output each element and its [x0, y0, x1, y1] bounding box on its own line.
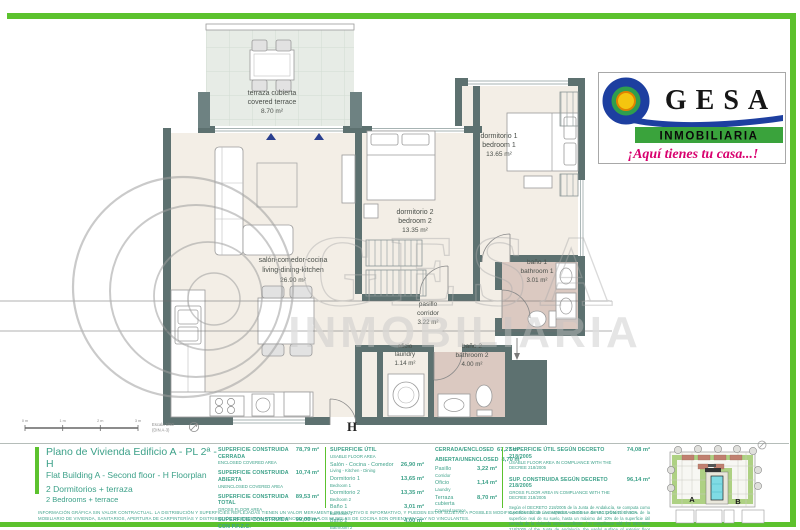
dining-chair-icon: [262, 286, 284, 298]
table-row: Salón - Cocina - Comedor Living - Kitche…: [330, 462, 424, 474]
bedroom1-label-es: dormitorio 1: [481, 133, 518, 140]
logo-subtitle: INMOBILIARIA: [659, 131, 758, 143]
row-label-es: SUPERFICIE CONSTRUIDA CERRADA: [218, 447, 293, 460]
scale-tick-0: 0 m: [22, 419, 28, 423]
disclaimer-line-2: MOBILIARIO DE VIVIENDA, SANITARIOS, APER…: [38, 516, 788, 522]
floor-plan: terraza cubierta covered terrace 8.70 m²…: [0, 0, 800, 443]
column-divider: [325, 447, 326, 508]
building-a-label: A: [689, 495, 695, 504]
table-row: CERRADA/ENCLOSED 67,27 m²: [435, 447, 497, 454]
title-block: Plano de Vivienda Edificio A - PL 2ª - H…: [46, 446, 221, 504]
tv-unit-icon: [342, 155, 355, 203]
terrace-table-icon: [250, 50, 294, 80]
table-row: SUPERFICIE ÚTIL SEGÚN DECRETO 218/2005 U…: [509, 447, 650, 471]
table-row: Dormitorio 1 Bedroom 1 13,65 m²: [330, 476, 424, 488]
table-row: SUPERFICIE CONSTRUIDA ABIERTA UNENCLOSED…: [218, 470, 319, 488]
kitchen-sink-icon: [175, 306, 201, 344]
table-row: Oficio Laundry 1,14 m²: [435, 480, 497, 492]
watermark-inmobiliaria-text: INMOBILIARIA: [288, 308, 642, 357]
pool: [711, 476, 723, 500]
north-indicator-icon: [758, 441, 766, 449]
row-value: 78,79 m²: [296, 447, 319, 453]
terrace-railing: [206, 24, 354, 30]
logo-name: GESA: [665, 85, 777, 116]
table-row: SUPERFICIE CONSTRUIDA CERRADA ENCLOSED C…: [218, 447, 319, 465]
laundry-area: 1.14 m²: [395, 360, 416, 367]
north-indicator-icon: [189, 422, 198, 431]
plan-title-es: Plano de Vivienda Edificio A - PL 2ª - H: [46, 446, 221, 470]
logo-swoosh-icon: [633, 115, 783, 128]
sofa-icon: [215, 147, 243, 255]
terrace-label-es: terraza cubierta: [248, 90, 297, 97]
table-row: SUP. CONSTRUIDA SEGÚN DECRETO 218/2005 G…: [509, 477, 650, 501]
scale-label: Escala 1/50: [152, 422, 175, 427]
bath2-area: 4.00 m²: [462, 361, 483, 368]
scale-bar: 0 m 1 m 2 m 3 m Escala 1/50 (DIN A-3): [18, 410, 218, 440]
logo-slogan: ¡Aquí tienes tu casa...!: [628, 147, 759, 162]
disclaimer: INFORMACIÓN GRÁFICA SIN VALOR CONTRACTUA…: [38, 510, 788, 523]
terrace-area: 8.70 m²: [261, 108, 284, 115]
usable-header: SUPERFICIE ÚTIL USABLE FLOOR AREA: [330, 447, 424, 459]
table-row: Pasillo Corridor 3,22 m²: [435, 466, 497, 478]
gesa-logo-icon: GESA INMOBILIARIA ¡Aquí tienes tu casa..…: [599, 73, 785, 163]
fridge-icon: [284, 392, 310, 416]
bath2-sink-icon: [438, 394, 470, 417]
plan-subtitle-en: 2 Bedrooms + terrace: [46, 495, 221, 504]
logo: GESA INMOBILIARIA ¡Aquí tienes tu casa..…: [598, 72, 786, 164]
building-b-label: B: [735, 497, 741, 506]
floorplan-page: terraza cubierta covered terrace 8.70 m²…: [0, 0, 800, 530]
wardrobe-icon-2: [560, 92, 578, 126]
terrace-label-en: covered terrace: [248, 99, 297, 106]
plan-subtitle-es: 2 Dormitorios + terraza: [46, 484, 221, 494]
plan-title-en: Flat Building A - Second floor - H Floor…: [46, 470, 221, 480]
scale-tick-1: 1 m: [60, 419, 66, 423]
scale-tick-2: 2 m: [97, 419, 103, 423]
oven-icon: [252, 394, 274, 416]
bedroom1-area: 13.65 m²: [486, 151, 512, 158]
unit-letter: H: [347, 419, 357, 434]
scale-tick-3: 3 m: [135, 419, 141, 423]
column-divider: [502, 447, 503, 508]
scale-format: (DIN A-3): [152, 428, 170, 433]
title-accent-bar: [35, 447, 39, 494]
usable-areas-table-col2: CERRADA/ENCLOSED 67,27 m² ABIERTA/UNENCL…: [435, 447, 497, 513]
table-row: Dormitorio 2 Bedroom 2 13,35 m²: [330, 490, 424, 502]
toilet2-icon: [476, 385, 492, 407]
bench-icon: [524, 176, 552, 188]
terrace-chair-icon: [252, 40, 267, 51]
table-row: ABIERTA/UNENCLOSED 8,70 m²: [435, 457, 497, 464]
bedroom1-label-en: bedroom 1: [482, 142, 516, 149]
common-core-block: [512, 360, 547, 417]
row-label-en: ENCLOSED COVERED AREA: [218, 460, 293, 465]
